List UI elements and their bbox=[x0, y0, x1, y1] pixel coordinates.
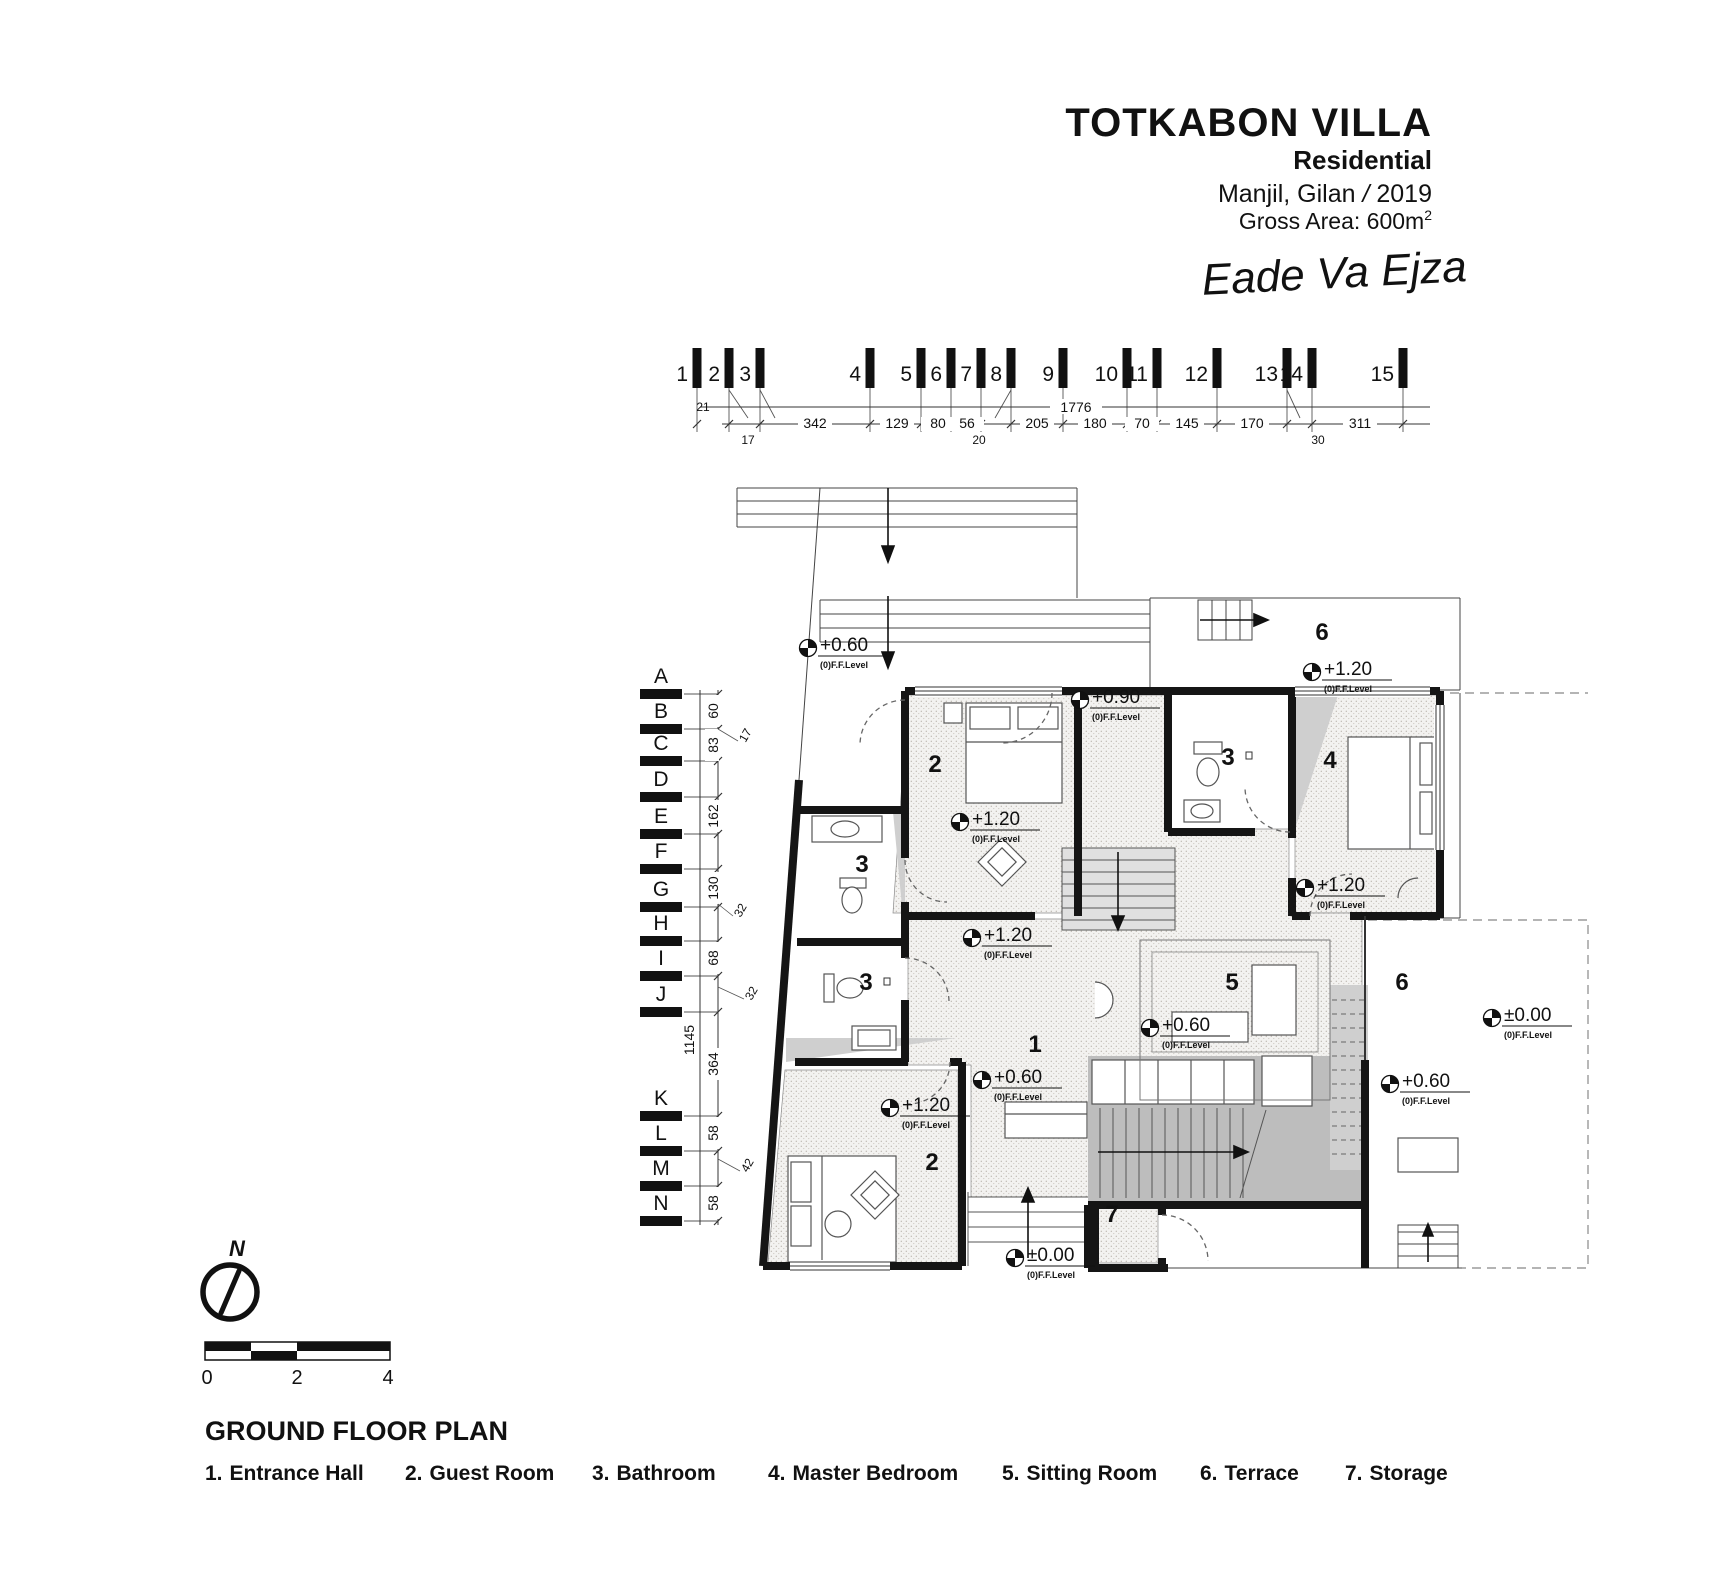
level-datum: (0)F.F.Level bbox=[1162, 1040, 1210, 1050]
segment-dimension: 162 bbox=[705, 804, 721, 828]
grid-axis-tick bbox=[640, 792, 682, 802]
level-datum: (0)F.F.Level bbox=[972, 834, 1020, 844]
grid-axis-tick bbox=[1399, 348, 1408, 388]
scale-tick-label: 2 bbox=[291, 1367, 302, 1389]
legend-label: Sitting Room bbox=[1027, 1462, 1158, 1485]
grid-axis-tick bbox=[640, 902, 682, 912]
level-marker: ±0.00(0)F.F.Level bbox=[1007, 1245, 1096, 1280]
room-number: 3 bbox=[1221, 744, 1234, 771]
grid-axis-letter: E bbox=[654, 805, 668, 828]
level-datum: (0)F.F.Level bbox=[1402, 1096, 1450, 1106]
legend-label: Bathroom bbox=[617, 1462, 716, 1485]
grid-axis-tick bbox=[640, 1111, 682, 1121]
grid-axis-tick bbox=[640, 1181, 682, 1191]
legend-item: 2.Guest Room bbox=[405, 1462, 554, 1485]
level-value: +1.20 bbox=[984, 925, 1032, 946]
room-number: 4 bbox=[1323, 747, 1337, 774]
grid-axis-tick bbox=[1213, 348, 1222, 388]
small-dimension: 20 bbox=[972, 433, 986, 447]
location-text: Manjil, Gilan bbox=[1218, 180, 1356, 208]
grid-axis-tick bbox=[917, 348, 926, 388]
room-number: 6 bbox=[1315, 619, 1328, 646]
segment-dimension: 56 bbox=[959, 415, 975, 431]
room-number: 7 bbox=[1105, 1201, 1118, 1228]
room-number: 1 bbox=[1028, 1031, 1041, 1058]
window bbox=[1434, 705, 1446, 850]
console bbox=[1005, 1102, 1087, 1138]
legend-item: 1.Entrance Hall bbox=[205, 1462, 364, 1485]
grid-axis-tick bbox=[640, 829, 682, 839]
level-datum: (0)F.F.Level bbox=[994, 1092, 1042, 1102]
level-datum: (0)F.F.Level bbox=[1027, 1270, 1075, 1280]
grid-axis-number: 2 bbox=[708, 363, 720, 386]
footer: N 024 GROUND FLOOR PLAN 1.Entrance Hall2… bbox=[201, 1236, 1447, 1485]
level-datum: (0)F.F.Level bbox=[984, 950, 1032, 960]
toilet bbox=[1197, 758, 1219, 786]
planter bbox=[1398, 1138, 1458, 1172]
grid-axis-tick bbox=[693, 348, 702, 388]
level-value: +1.20 bbox=[972, 809, 1020, 830]
legend-number: 7. bbox=[1345, 1462, 1363, 1485]
grid-axis-letter: K bbox=[654, 1087, 668, 1110]
segment-dimension: 83 bbox=[705, 737, 721, 753]
project-subtitle: Residential bbox=[1293, 145, 1432, 175]
segment-dimension: 80 bbox=[930, 415, 946, 431]
level-datum: (0)F.F.Level bbox=[1504, 1030, 1552, 1040]
grid-axis-number: 6 bbox=[930, 363, 942, 386]
gross-area: Gross Area: 600m2 bbox=[1239, 207, 1432, 234]
sofa-side bbox=[1252, 965, 1296, 1035]
segment-dimension: 205 bbox=[1025, 415, 1049, 431]
grid-axis-number: 9 bbox=[1042, 363, 1054, 386]
sofa-long bbox=[1092, 1060, 1254, 1104]
legend-label: Terrace bbox=[1225, 1462, 1299, 1485]
room-number: 6 bbox=[1395, 969, 1408, 996]
level-value: ±0.00 bbox=[1027, 1245, 1074, 1266]
grid-axis-tick bbox=[640, 756, 682, 766]
grid-axis-letter: C bbox=[653, 732, 668, 755]
room-legend: 1.Entrance Hall2.Guest Room3.Bathroom4.M… bbox=[205, 1462, 1448, 1485]
room-number: 5 bbox=[1225, 969, 1238, 996]
legend-item: 7.Storage bbox=[1345, 1462, 1448, 1485]
room-number: 2 bbox=[925, 1149, 938, 1176]
north-label: N bbox=[229, 1236, 246, 1261]
legend-number: 4. bbox=[768, 1462, 786, 1485]
side-table bbox=[825, 1211, 851, 1237]
grid-axis-number: 5 bbox=[900, 363, 912, 386]
title-block: TOTKABON VILLA Residential Manjil, Gilan… bbox=[1065, 101, 1467, 305]
segment-dimension: 58 bbox=[705, 1195, 721, 1211]
segment-dimension: 60 bbox=[705, 703, 721, 719]
level-value: +1.20 bbox=[902, 1095, 950, 1116]
grid-axis-tick bbox=[640, 1216, 682, 1226]
level-datum: (0)F.F.Level bbox=[1324, 684, 1372, 694]
legend-number: 6. bbox=[1200, 1462, 1218, 1485]
legend-item: 6.Terrace bbox=[1200, 1462, 1299, 1485]
plan-title: GROUND FLOOR PLAN bbox=[205, 1416, 508, 1446]
grid-axis-tick bbox=[866, 348, 875, 388]
legend-item: 5.Sitting Room bbox=[1002, 1462, 1157, 1485]
level-value: +0.60 bbox=[1162, 1015, 1210, 1036]
toilet-tank bbox=[1194, 742, 1222, 754]
level-datum: (0)F.F.Level bbox=[1092, 712, 1140, 722]
drawing-sheet: TOTKABON VILLA Residential Manjil, Gilan… bbox=[0, 0, 1733, 1575]
project-title: TOTKABON VILLA bbox=[1065, 101, 1432, 145]
legend-item: 4.Master Bedroom bbox=[768, 1462, 958, 1485]
grid-axis-tick bbox=[756, 348, 765, 388]
level-marker: ±0.00(0)F.F.Level bbox=[1484, 1005, 1573, 1040]
legend-number: 1. bbox=[205, 1462, 223, 1485]
level-datum: (0)F.F.Level bbox=[902, 1120, 950, 1130]
level-value: +0.60 bbox=[994, 1067, 1042, 1088]
architect-signature: Eade Va Ejza bbox=[1201, 242, 1468, 305]
small-dimension: 30 bbox=[1311, 433, 1325, 447]
grid-axis-number: 15 bbox=[1371, 363, 1394, 386]
north-arrow: N bbox=[203, 1236, 257, 1319]
window bbox=[915, 685, 1062, 697]
grid-axis-letter: F bbox=[655, 840, 668, 863]
segment-dimension: 129 bbox=[885, 415, 909, 431]
legend-number: 5. bbox=[1002, 1462, 1020, 1485]
small-dimension: 32 bbox=[731, 901, 750, 920]
legend-label: Guest Room bbox=[430, 1462, 555, 1485]
grid-axis-tick bbox=[640, 1007, 682, 1017]
grid-axis-tick bbox=[1308, 348, 1317, 388]
grid-axis-tick bbox=[640, 864, 682, 874]
grid-axis-letter: L bbox=[655, 1122, 667, 1145]
grid-axis-number: 10 bbox=[1095, 363, 1118, 386]
grid-axis-tick bbox=[640, 689, 682, 699]
toilet bbox=[842, 887, 862, 913]
grid-axis-number: 11 bbox=[1126, 363, 1148, 386]
grid-axis-tick bbox=[640, 936, 682, 946]
grid-axis-letter: B bbox=[654, 700, 668, 723]
segment-dimension: 130 bbox=[705, 876, 721, 900]
segment-dimension: 145 bbox=[1175, 415, 1199, 431]
small-dimension: 21 bbox=[696, 400, 710, 414]
grid-axis-tick bbox=[725, 348, 734, 388]
window bbox=[790, 1260, 890, 1272]
grid-axis-number: 13 bbox=[1255, 363, 1278, 386]
grid-axis-number: 3 bbox=[739, 363, 751, 386]
segment-dimension: 364 bbox=[705, 1052, 721, 1076]
overall-dimension: 1776 bbox=[1060, 399, 1091, 415]
grid-axis-letter: H bbox=[653, 912, 668, 935]
grid-axis-tick bbox=[1059, 348, 1068, 388]
level-value: +0.60 bbox=[820, 635, 868, 656]
grid-axis-letter: A bbox=[654, 665, 668, 688]
legend-label: Master Bedroom bbox=[793, 1462, 959, 1485]
level-datum: (0)F.F.Level bbox=[1317, 900, 1365, 910]
scale-bar bbox=[205, 1342, 390, 1360]
grid-axis-tick bbox=[1007, 348, 1016, 388]
armchair bbox=[1262, 1056, 1312, 1106]
level-value: +1.20 bbox=[1317, 875, 1365, 896]
small-dimension: 42 bbox=[738, 1156, 757, 1175]
scale-tick-label: 4 bbox=[382, 1367, 393, 1389]
room-number: 2 bbox=[928, 751, 941, 778]
grid-axis-letter: M bbox=[652, 1157, 670, 1180]
level-datum: (0)F.F.Level bbox=[820, 660, 868, 670]
top-grid-axes: 1234567891011121314151776342129805620518… bbox=[676, 348, 1430, 447]
level-marker: +0.60(0)F.F.Level bbox=[1382, 1071, 1471, 1106]
level-value: +0.60 bbox=[1402, 1071, 1450, 1092]
level-value: ±0.00 bbox=[1504, 1005, 1551, 1026]
segment-dimension: 342 bbox=[803, 415, 827, 431]
small-dimension: 17 bbox=[741, 433, 755, 447]
segment-dimension: 170 bbox=[1240, 415, 1264, 431]
room-number: 3 bbox=[859, 969, 872, 996]
legend-label: Entrance Hall bbox=[230, 1462, 364, 1485]
segment-dimension: 180 bbox=[1083, 415, 1107, 431]
segment-dimension: 58 bbox=[705, 1125, 721, 1141]
grid-axis-tick bbox=[640, 1146, 682, 1156]
project-location-year: Manjil, Gilan / 2019 bbox=[1218, 180, 1432, 208]
year-text: 2019 bbox=[1376, 180, 1432, 208]
level-value: +0.90 bbox=[1092, 687, 1140, 708]
grid-axis-number: 8 bbox=[990, 363, 1002, 386]
grid-axis-number: 14 bbox=[1280, 363, 1304, 386]
overall-dimension: 1145 bbox=[681, 1025, 697, 1055]
grid-axis-letter: I bbox=[658, 947, 664, 970]
grid-axis-letter: J bbox=[656, 983, 667, 1006]
segment-dimension: 311 bbox=[1349, 415, 1372, 431]
grid-axis-letter: G bbox=[653, 878, 669, 901]
level-value: +1.20 bbox=[1324, 659, 1372, 680]
grid-axis-tick bbox=[1153, 348, 1162, 388]
segment-dimension: 70 bbox=[1134, 415, 1150, 431]
room-number: 3 bbox=[855, 851, 868, 878]
level-marker: +0.60(0)F.F.Level bbox=[800, 635, 889, 670]
grid-axis-number: 7 bbox=[960, 363, 972, 386]
grid-axis-tick bbox=[977, 348, 986, 388]
segment-dimension: 68 bbox=[705, 950, 721, 966]
grid-axis-tick bbox=[947, 348, 956, 388]
grid-axis-tick bbox=[640, 971, 682, 981]
legend-number: 3. bbox=[592, 1462, 610, 1485]
legend-number: 2. bbox=[405, 1462, 423, 1485]
grid-axis-number: 4 bbox=[849, 363, 861, 386]
small-dimension: 17 bbox=[736, 726, 755, 745]
grid-axis-number: 12 bbox=[1185, 363, 1208, 386]
grid-axis-number: 1 bbox=[676, 363, 688, 386]
scale-tick-label: 0 bbox=[201, 1367, 212, 1389]
left-grid-axes: ABCDEFGHIJKLMN11456083162130683645858173… bbox=[640, 665, 761, 1226]
grid-axis-letter: D bbox=[653, 768, 668, 791]
small-dimension: 32 bbox=[742, 984, 761, 1003]
scale-tick-labels: 024 bbox=[201, 1367, 393, 1389]
legend-label: Storage bbox=[1370, 1462, 1448, 1485]
grid-axis-letter: N bbox=[653, 1192, 668, 1215]
legend-item: 3.Bathroom bbox=[592, 1462, 716, 1485]
